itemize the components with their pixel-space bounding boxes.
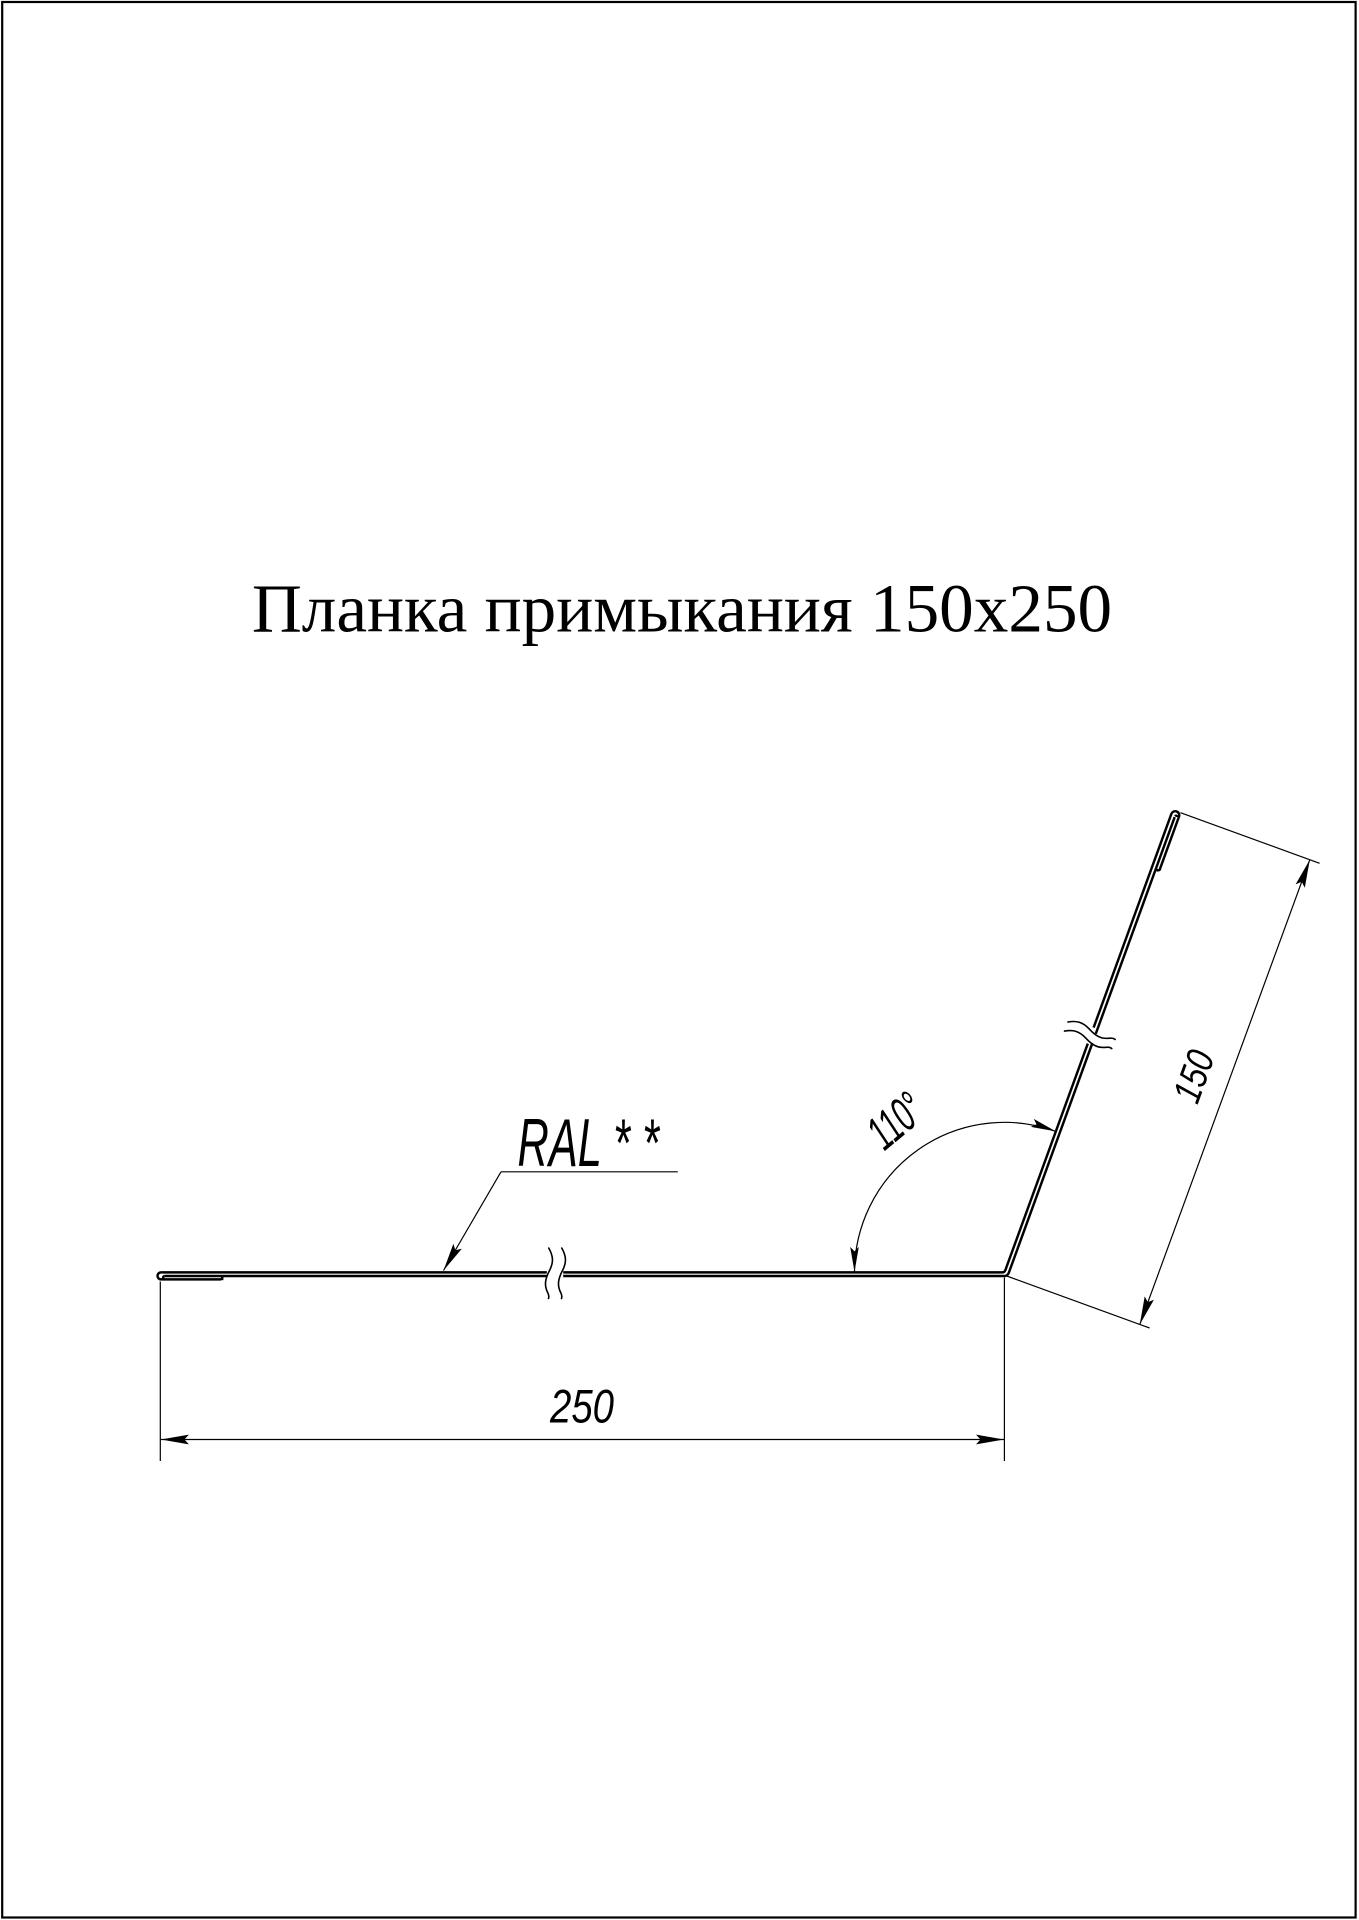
svg-text:RAL * *: RAL * *	[518, 1105, 661, 1181]
svg-text:250: 250	[549, 1380, 614, 1433]
svg-text:Планка примыкания 150х250: Планка примыкания 150х250	[252, 570, 1112, 647]
